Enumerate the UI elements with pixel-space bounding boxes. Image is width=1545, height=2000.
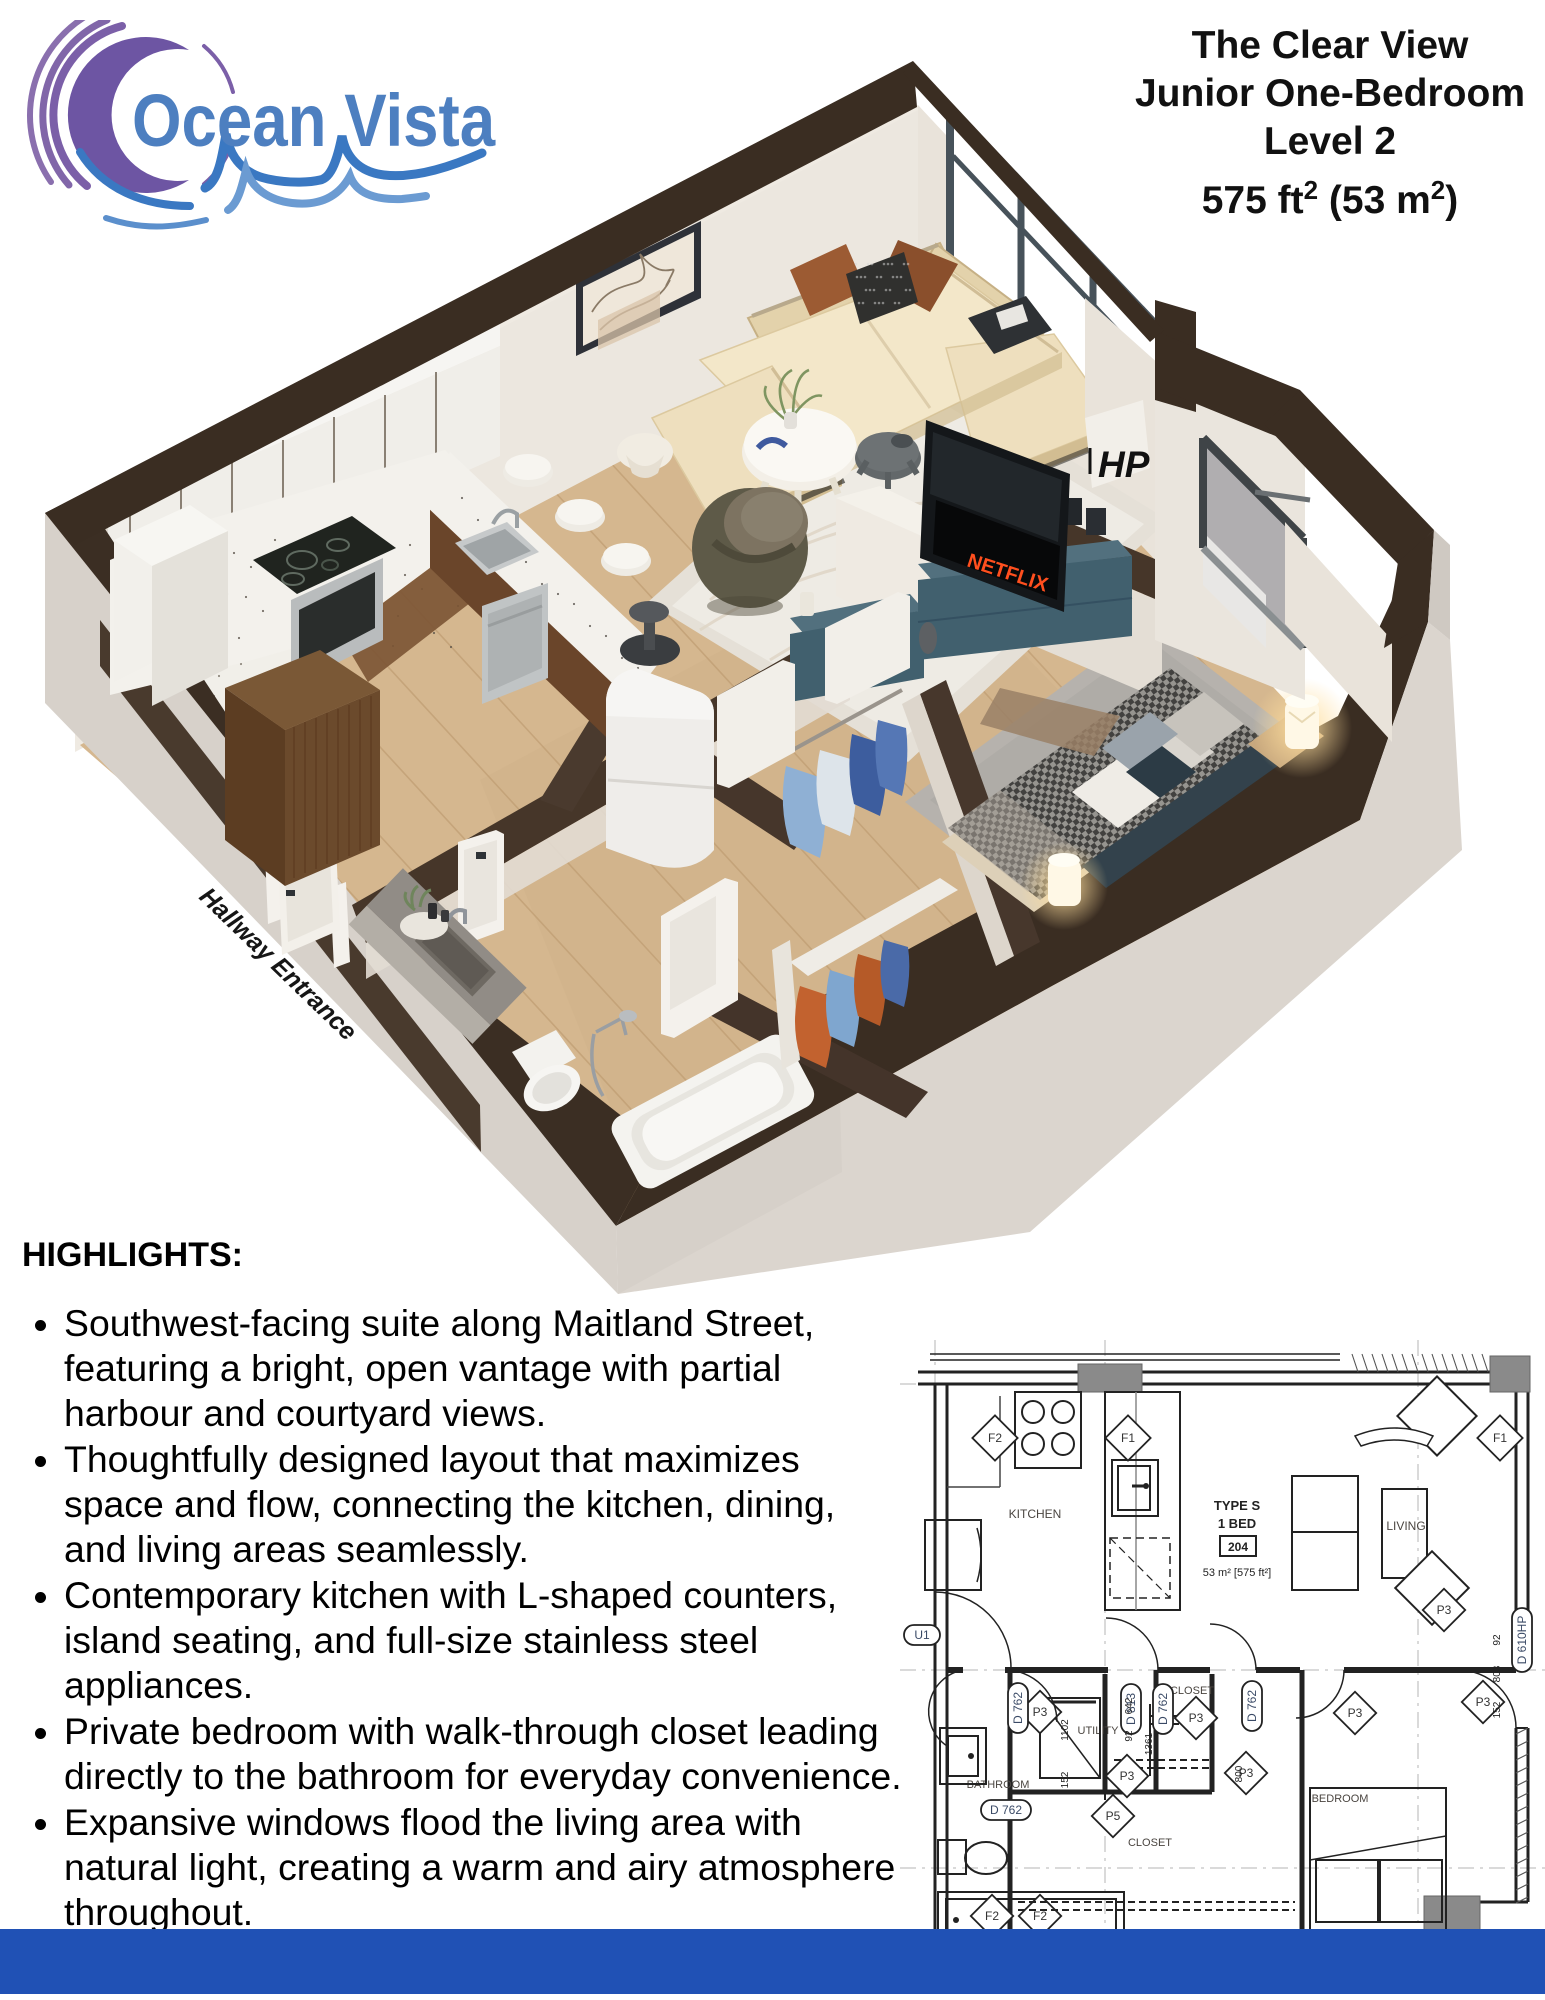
svg-text:BEDROOM: BEDROOM — [1312, 1793, 1369, 1805]
svg-text:204: 204 — [1228, 1540, 1248, 1554]
svg-text:D 762: D 762 — [1011, 1692, 1025, 1724]
svg-text:1361: 1361 — [1144, 1732, 1155, 1755]
svg-text:UTILITY: UTILITY — [1078, 1725, 1120, 1737]
svg-text:F2: F2 — [988, 1431, 1002, 1445]
svg-text:803: 803 — [1492, 1665, 1503, 1682]
svg-text:TYPE S: TYPE S — [1214, 1498, 1261, 1513]
svg-text:D 762: D 762 — [1245, 1690, 1259, 1722]
svg-text:P3: P3 — [1120, 1769, 1135, 1783]
svg-text:KITCHEN: KITCHEN — [1009, 1507, 1062, 1521]
svg-text:642: 642 — [1124, 1697, 1135, 1714]
svg-text:P3: P3 — [1476, 1695, 1491, 1709]
svg-text:F2: F2 — [1033, 1909, 1047, 1923]
svg-text:CLOSET: CLOSET — [1128, 1837, 1172, 1849]
svg-text:CLOSET: CLOSET — [1170, 1685, 1214, 1697]
svg-text:P3: P3 — [1348, 1706, 1363, 1720]
svg-text:P5: P5 — [1106, 1809, 1121, 1823]
svg-text:D 762: D 762 — [1156, 1693, 1170, 1725]
svg-text:F1: F1 — [1121, 1431, 1135, 1445]
svg-text:F2: F2 — [985, 1909, 999, 1923]
svg-text:92: 92 — [1492, 1634, 1503, 1646]
svg-text:1102: 1102 — [1060, 1719, 1071, 1741]
svg-text:92: 92 — [1124, 1730, 1135, 1742]
svg-text:1 BED: 1 BED — [1218, 1516, 1256, 1531]
svg-text:152: 152 — [1492, 1701, 1503, 1718]
svg-text:P3: P3 — [1437, 1603, 1452, 1617]
svg-text:800: 800 — [1234, 1765, 1245, 1782]
svg-text:P3: P3 — [1189, 1711, 1204, 1725]
svg-text:D 610HP: D 610HP — [1515, 1616, 1529, 1665]
svg-text:HP: HP — [1098, 444, 1150, 485]
svg-text:P3: P3 — [1033, 1705, 1048, 1719]
svg-text:U1: U1 — [914, 1628, 930, 1642]
svg-text:LIVING: LIVING — [1386, 1519, 1425, 1533]
svg-text:152: 152 — [1060, 1771, 1071, 1788]
svg-text:F1: F1 — [1493, 1431, 1507, 1445]
svg-text:D 762: D 762 — [990, 1803, 1022, 1817]
svg-text:53 m² [575 ft²]: 53 m² [575 ft²] — [1203, 1567, 1271, 1579]
